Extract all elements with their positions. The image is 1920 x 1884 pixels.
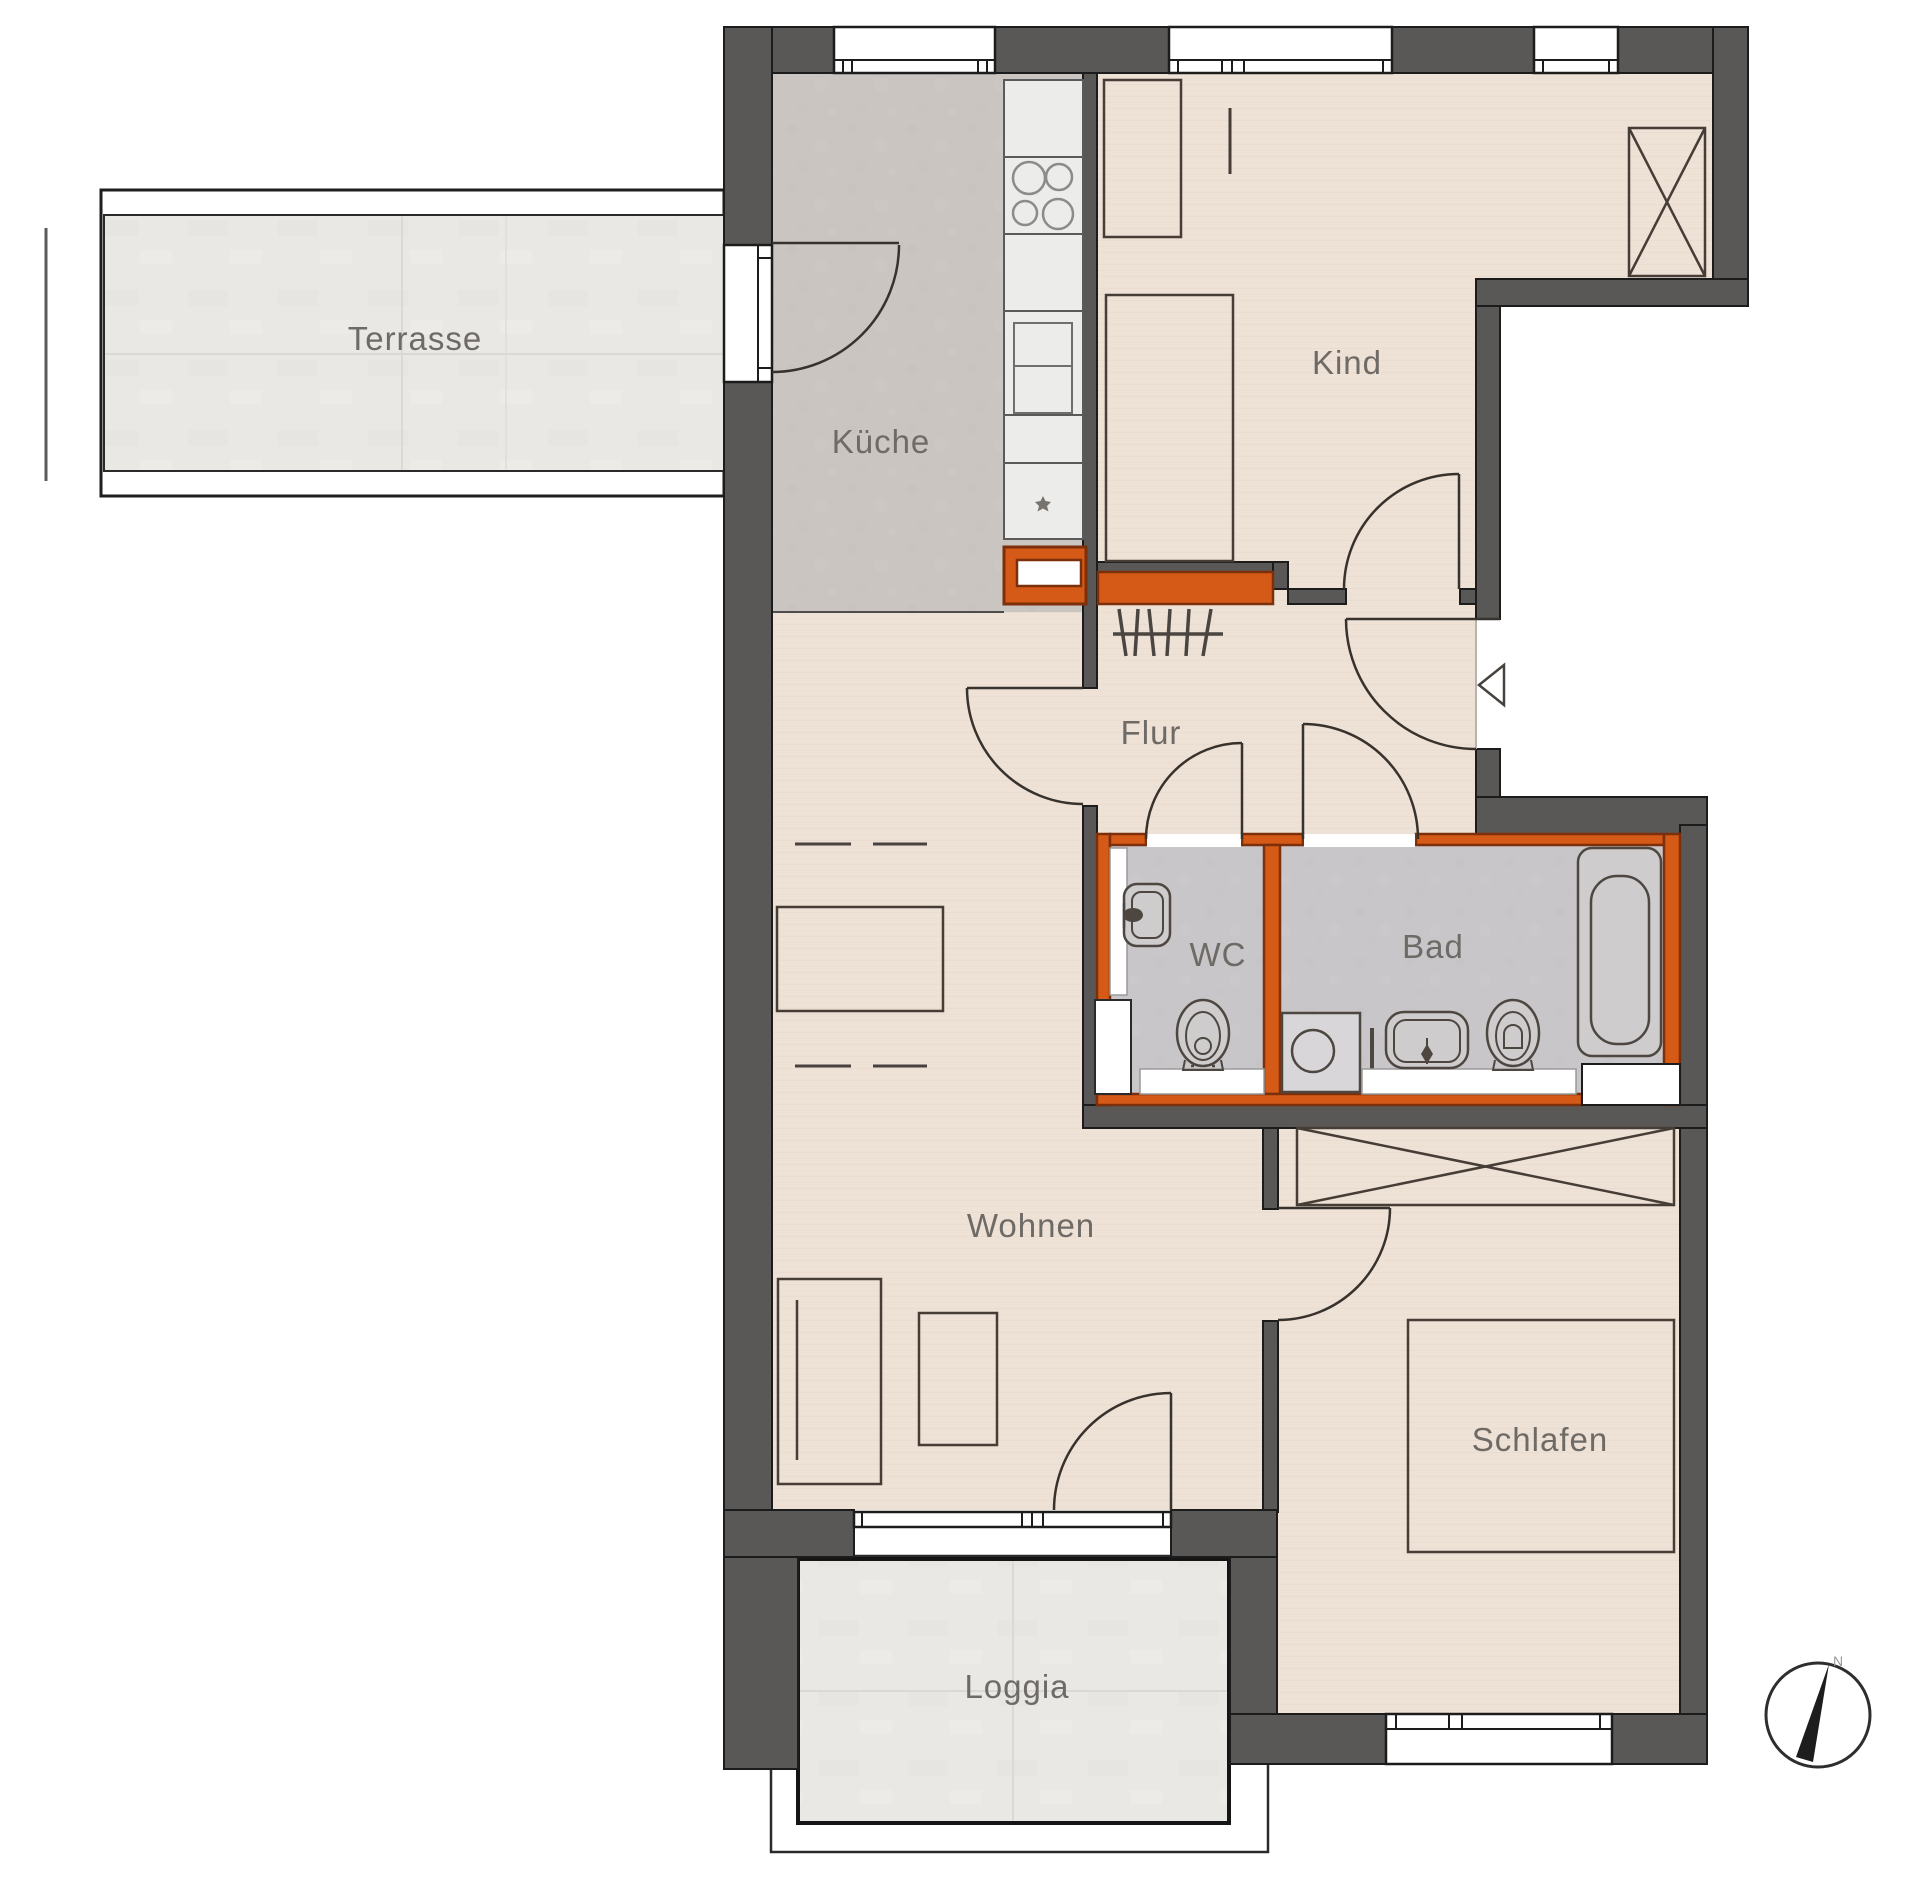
svg-text:Schlafen: Schlafen bbox=[1472, 1421, 1608, 1458]
svg-text:Küche: Küche bbox=[832, 423, 931, 460]
svg-text:WC: WC bbox=[1190, 936, 1247, 973]
svg-text:Loggia: Loggia bbox=[964, 1668, 1069, 1705]
svg-text:N: N bbox=[1833, 1653, 1843, 1669]
svg-text:Kind: Kind bbox=[1312, 344, 1382, 381]
svg-text:Flur: Flur bbox=[1121, 714, 1182, 751]
svg-text:Terrasse: Terrasse bbox=[348, 320, 483, 357]
svg-text:Bad: Bad bbox=[1402, 928, 1464, 965]
svg-text:Wohnen: Wohnen bbox=[967, 1207, 1095, 1244]
